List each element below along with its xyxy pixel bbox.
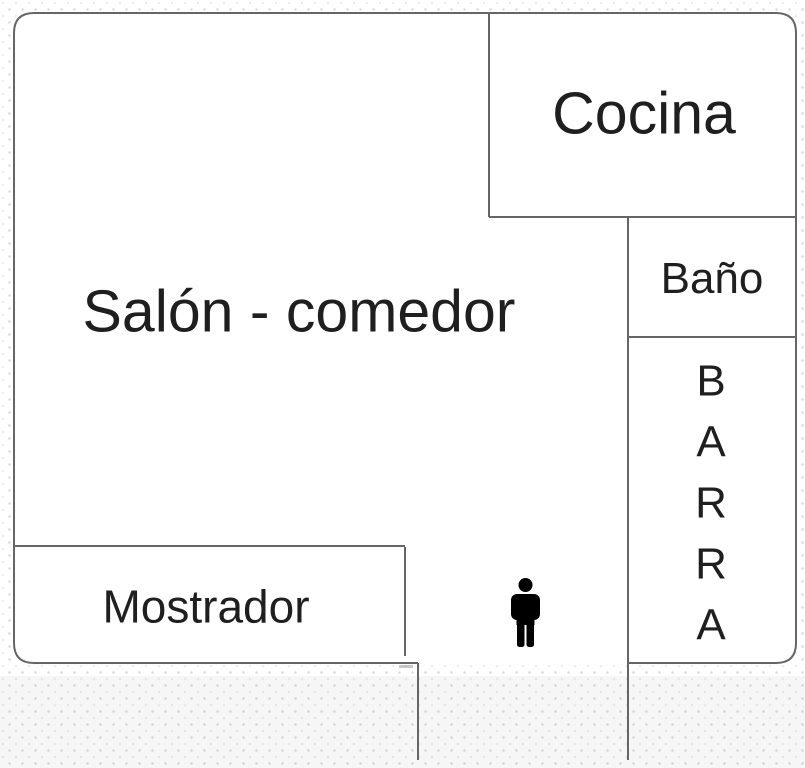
room-label-cocina: Cocina — [552, 82, 736, 147]
room-label-mostrador: Mostrador — [102, 582, 309, 633]
tiny-wall-annotation — [399, 665, 413, 668]
room-label-bano: Baño — [661, 255, 764, 303]
floor-plan: Salón - comedor Cocina Baño B A R R A Mo… — [0, 0, 805, 768]
room-label-salon-comedor: Salón - comedor — [83, 280, 516, 345]
room-label-barra: B A R R A — [695, 351, 727, 656]
person-icon — [509, 577, 542, 647]
